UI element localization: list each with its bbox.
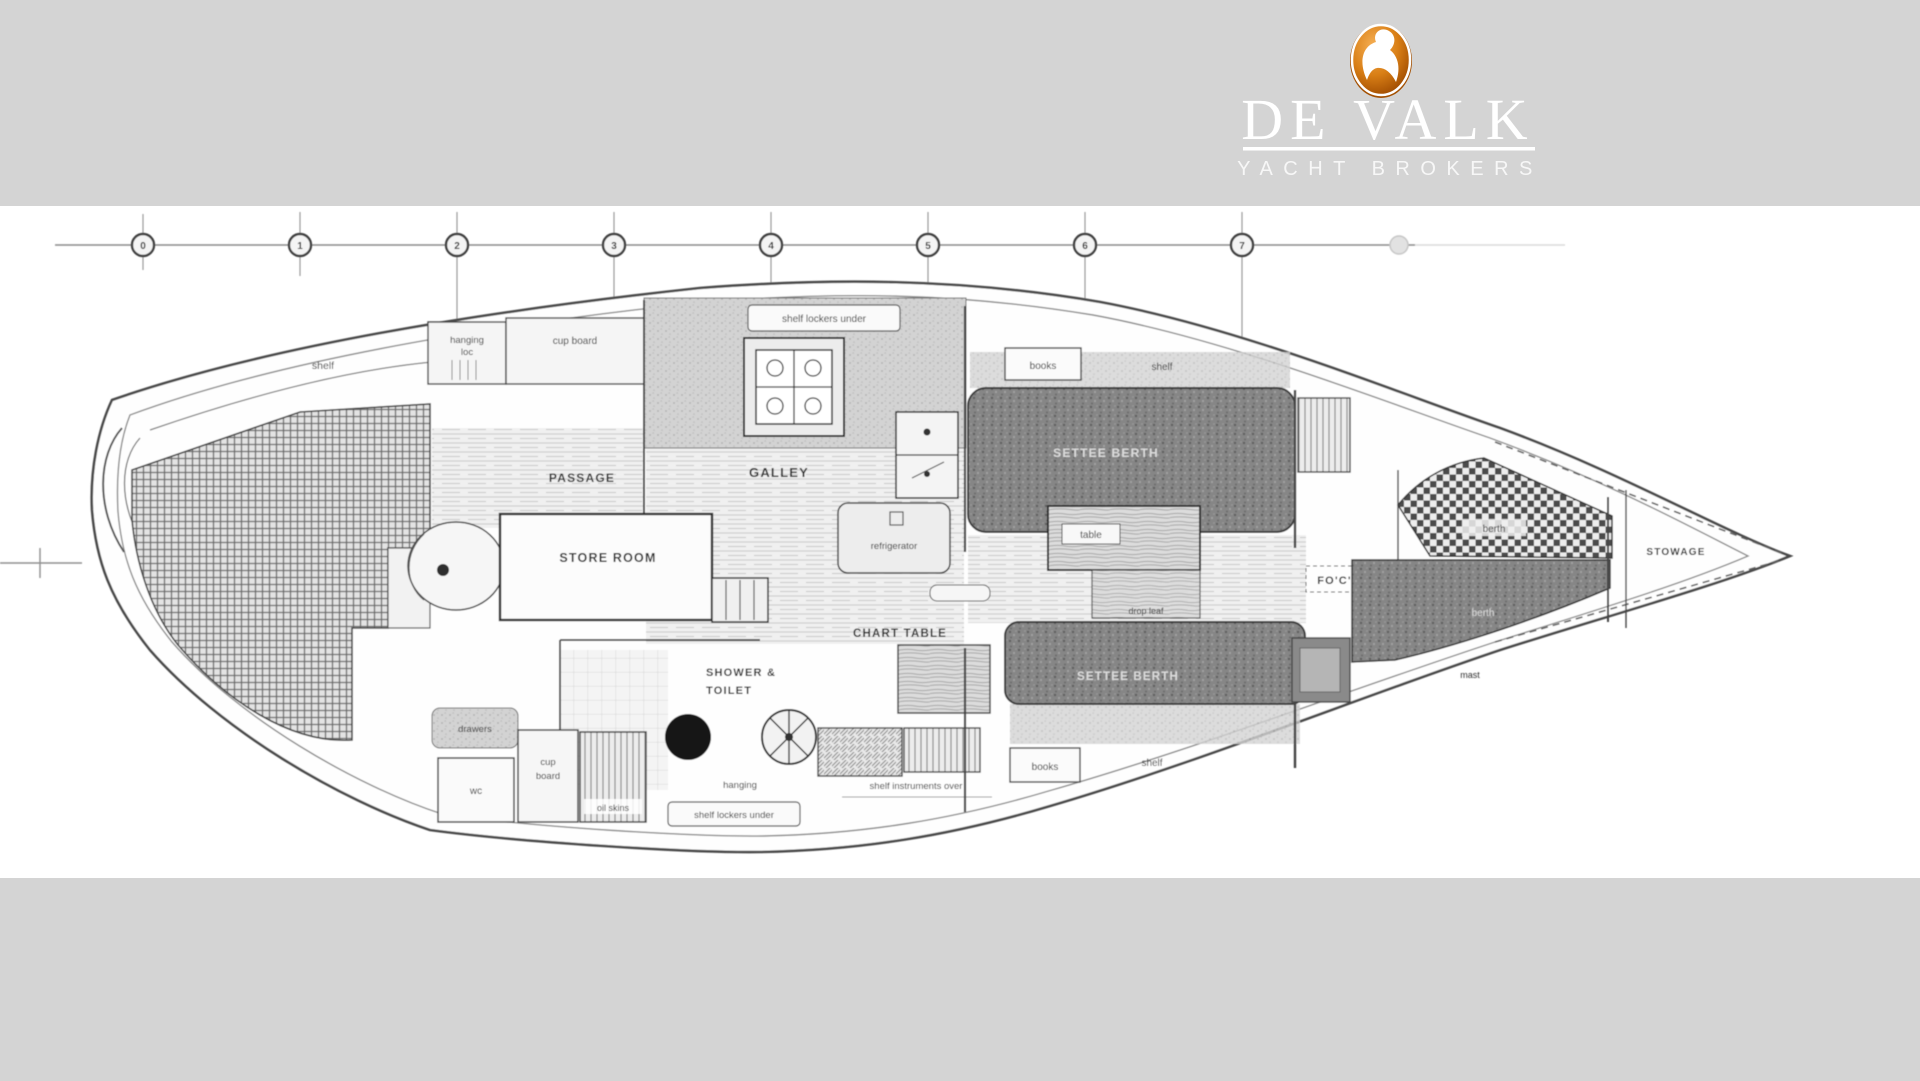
books-bottom-label: books: [1032, 762, 1059, 773]
station-number: 5: [925, 241, 931, 252]
top-gray-band: [0, 0, 1920, 206]
wc-box: wc: [438, 758, 514, 822]
shelf-lockers-top: shelf lockers under: [748, 305, 900, 331]
passage-label: PASSAGE: [549, 471, 615, 485]
hanging-bottom-label: hanging: [723, 780, 757, 791]
shower-label-line2: TOILET: [706, 685, 752, 697]
saloon-shelf-band-bottom: [1010, 704, 1300, 744]
station-marker: 5: [917, 234, 939, 256]
settee-berth-bottom: SETTEE BERTH: [1005, 622, 1305, 704]
mast-label: mast: [1460, 670, 1480, 680]
store-room: STORE ROOM: [500, 514, 712, 620]
wc-label: wc: [469, 786, 482, 797]
wash-basin: [408, 522, 504, 610]
station-number: 7: [1239, 241, 1245, 252]
refrigerator-label: refrigerator: [871, 541, 917, 552]
shelf-bottom-right-label: shelf: [1141, 758, 1162, 769]
hanging-locker: hanging loc: [428, 322, 506, 384]
shelf-instruments-label: shelf instruments over: [870, 781, 963, 792]
washbasin-dial: [762, 710, 816, 764]
shelf-top-right-label: shelf: [1151, 362, 1172, 373]
shelf-lockers-top-label: shelf lockers under: [782, 314, 867, 325]
cupboard-bottom-label1: cup: [540, 757, 555, 768]
station-marker: 2: [446, 234, 468, 256]
table-label: table: [1080, 530, 1102, 541]
cockpit-locker: [818, 728, 902, 776]
station-number: 1: [297, 241, 303, 252]
vberth-bottom-label: berth: [1472, 608, 1495, 619]
station-number: 4: [768, 241, 774, 252]
brand-name: DE VALK: [1241, 87, 1534, 152]
galley-stove: [744, 338, 844, 436]
drop-leaf-label: drop leaf: [1128, 606, 1164, 616]
oilskins-label: oil skins: [597, 803, 630, 813]
companionway-steps: [712, 578, 768, 622]
yacht-layout-page: DE VALK YACHT BROKERS 0: [0, 0, 1920, 1081]
station-number: 0: [140, 241, 146, 252]
station-number: 6: [1082, 241, 1088, 252]
station-marker: 1: [289, 234, 311, 256]
drop-leaf: drop leaf: [1092, 570, 1200, 618]
cupboard-bottom-label2: board: [536, 771, 560, 782]
chart-shelf: [930, 585, 990, 601]
oilskins-locker: oil skins: [580, 732, 646, 822]
slatted-locker: [904, 728, 980, 772]
settee-bottom-label: SETTEE BERTH: [1077, 671, 1179, 683]
brand-tagline: YACHT BROKERS: [1237, 158, 1543, 180]
hanging-locker-label: hanging: [450, 335, 484, 346]
books-box-bottom: books: [1010, 748, 1080, 782]
settee-top-label: SETTEE BERTH: [1053, 446, 1159, 460]
shower-label-line1: SHOWER &: [706, 667, 776, 679]
refrigerator: refrigerator: [838, 503, 950, 573]
drawers-label: drawers: [458, 724, 492, 735]
cupboard-top-label: cup board: [553, 336, 597, 347]
chart-table-label: CHART TABLE: [853, 628, 947, 640]
station-marker: 3: [603, 234, 625, 256]
hanging-locker-label2: loc: [461, 347, 473, 358]
chart-table-surface: [898, 645, 990, 713]
cupboard-top: cup board: [506, 318, 644, 384]
galley-label: GALLEY: [749, 465, 809, 480]
cupboard-bottom: cup board: [518, 730, 578, 822]
books-top-label: books: [1030, 361, 1057, 372]
aft-shelf-label: shelf: [312, 360, 334, 372]
toilet-bowl: [665, 714, 711, 760]
station-marker: 0: [132, 234, 154, 256]
shelf-lockers-bottom-label: shelf lockers under: [694, 810, 774, 821]
station-marker: 4: [760, 234, 782, 256]
bottom-gray-band: [0, 878, 1920, 1081]
station-marker-faint: [1390, 236, 1408, 254]
station-marker: 7: [1231, 234, 1253, 256]
galley-sink: [896, 412, 958, 498]
station-number: 3: [611, 241, 617, 252]
saloon-table: table: [1048, 506, 1200, 570]
station-marker: 6: [1074, 234, 1096, 256]
store-room-label: STORE ROOM: [559, 551, 656, 565]
books-box-top: books: [1005, 348, 1081, 380]
fwd-hanging-locker: [1298, 398, 1350, 472]
vberth-top-label: berth: [1483, 524, 1506, 535]
station-number: 2: [454, 241, 460, 252]
brand-rule: [1243, 147, 1535, 151]
fwd-foot-locker: [1292, 638, 1350, 702]
stowage-label: STOWAGE: [1646, 547, 1705, 558]
